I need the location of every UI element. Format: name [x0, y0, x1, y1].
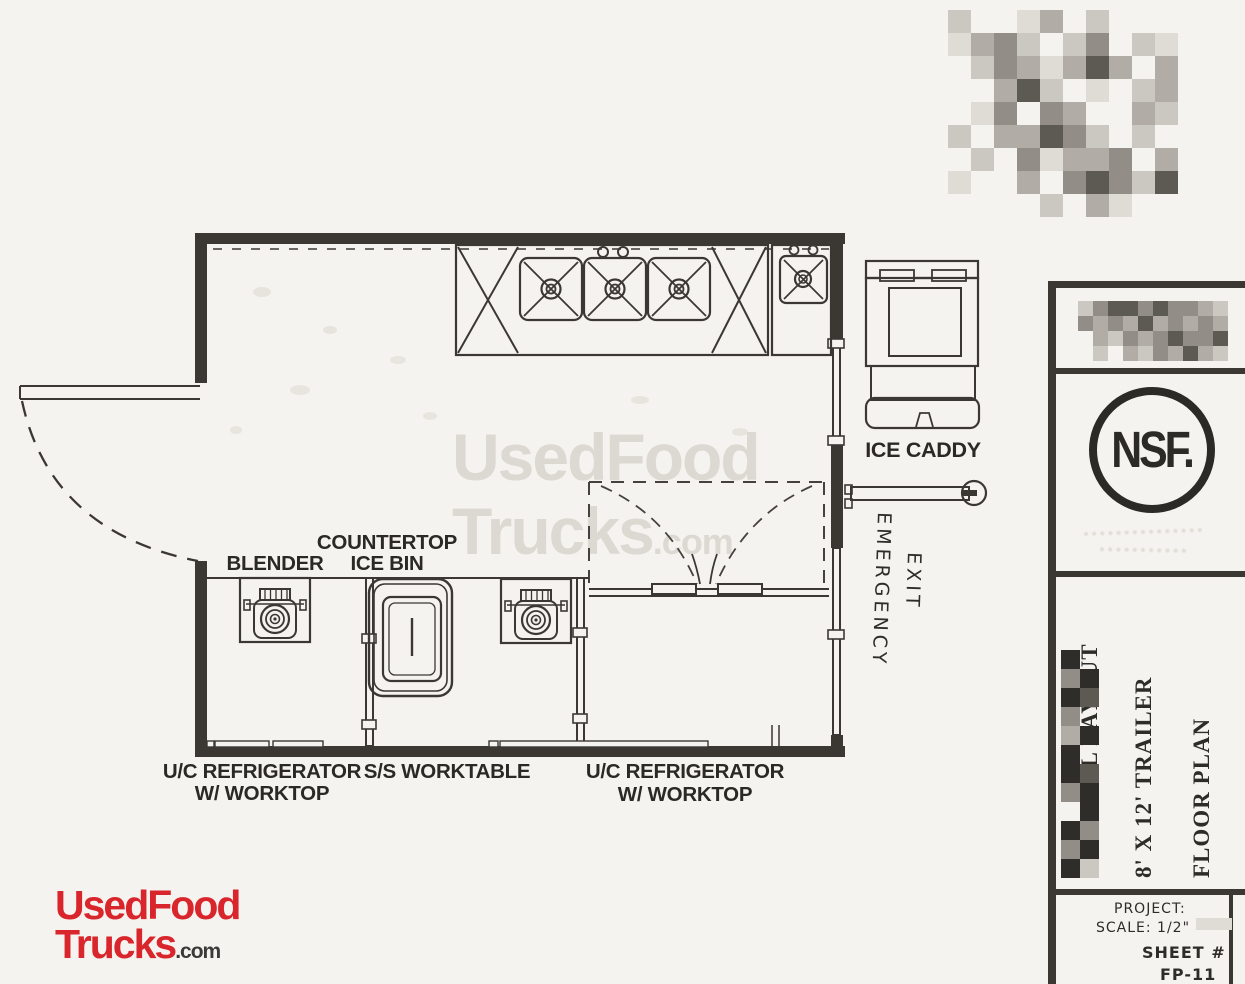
entry-door: [20, 386, 200, 561]
redacted-stamp-top-right: [925, 10, 1201, 217]
countertop-ice-bin: [369, 579, 452, 696]
window-door-arc: [601, 486, 697, 584]
blender-unit: [501, 579, 571, 643]
window-door-arc: [716, 486, 812, 584]
sheet-number: FP-11: [1160, 965, 1216, 984]
ice-bin-label-line1: COUNTERTOP: [317, 531, 457, 554]
fridge-right-label-line2: W/ WORKTOP: [618, 783, 752, 806]
sheet-label: SHEET #: [1142, 943, 1226, 962]
scale-label: SCALE: 1/2" -: [1096, 920, 1202, 936]
emergency-exit-line2: EXIT: [901, 552, 925, 611]
emergency-exit-note: EMERGENCY EXIT: [868, 512, 925, 668]
site-logo: UsedFood Trucks.com: [55, 886, 239, 964]
sink-basin-1: [520, 258, 582, 320]
ice-bin-label-line2: ICE BIN: [350, 552, 423, 575]
nsf-logo-text: NSF.: [1112, 421, 1193, 480]
site-logo-suffix: .com: [175, 940, 220, 963]
three-compartment-sink: [456, 245, 768, 355]
worktable-label: S/S WORKTABLE: [364, 760, 531, 783]
fridge-right-label-line1: U/C REFRIGERATOR: [586, 760, 785, 783]
drawing-title-section: ORIGINAL LAYOUT 8' X 12' TRAILER FLOOR P…: [1056, 577, 1245, 889]
faucet-knob: [618, 247, 628, 257]
hand-sink: [772, 245, 831, 355]
nsf-section: NSF.: [1056, 374, 1245, 571]
redacted-company-name: [1078, 301, 1228, 361]
faint-stamp-line: [1100, 547, 1186, 553]
fridge-left-label-line1: U/C REFRIGERATOR: [163, 760, 362, 783]
title-block-footer: PROJECT: SCALE: 1/2" - SHEET # FP-11: [1056, 895, 1245, 984]
emergency-exit-line1: EMERGENCY: [868, 512, 895, 668]
faucet-knob: [598, 247, 608, 257]
faucet-knob: [790, 246, 799, 255]
footer-rule: [1229, 895, 1233, 984]
faucet-knob: [809, 246, 818, 255]
drawing-title-trailer-size: 8' X 12' TRAILER: [1131, 676, 1157, 878]
nsf-logo: NSF.: [1089, 387, 1215, 513]
blender-unit: [240, 578, 310, 642]
fridge-left-label-line2: W/ WORKTOP: [195, 782, 329, 805]
faint-stamp-line: [1084, 528, 1202, 536]
title-block: NSF. ORIGINAL LAYOUT 8' X 12' TRAILER FL…: [1048, 281, 1245, 984]
redacted-owner-name: [1061, 650, 1099, 878]
blender-label: BLENDER: [227, 552, 324, 575]
emergency-exit-handle: [845, 481, 986, 508]
serving-window: [589, 482, 824, 586]
redacted-scale-value: [1196, 918, 1232, 930]
door-swing-arc: [22, 401, 198, 561]
scan-speckles: [230, 287, 748, 436]
drawing-title-floor-plan: FLOOR PLAN: [1189, 718, 1215, 878]
serving-window-counter: [589, 554, 829, 596]
title-block-header: [1056, 288, 1245, 368]
site-logo-line2: Trucks.com: [55, 925, 239, 964]
ice-caddy-label: ICE CADDY: [865, 438, 981, 462]
sink-basin-3: [648, 258, 710, 320]
scanned-floor-plan-page: UsedFood Trucks.com: [0, 0, 1245, 984]
sink-basin-2: [584, 258, 646, 320]
ice-caddy: [866, 261, 979, 428]
project-label: PROJECT:: [1114, 901, 1186, 917]
site-logo-line1: UsedFood: [55, 886, 239, 925]
